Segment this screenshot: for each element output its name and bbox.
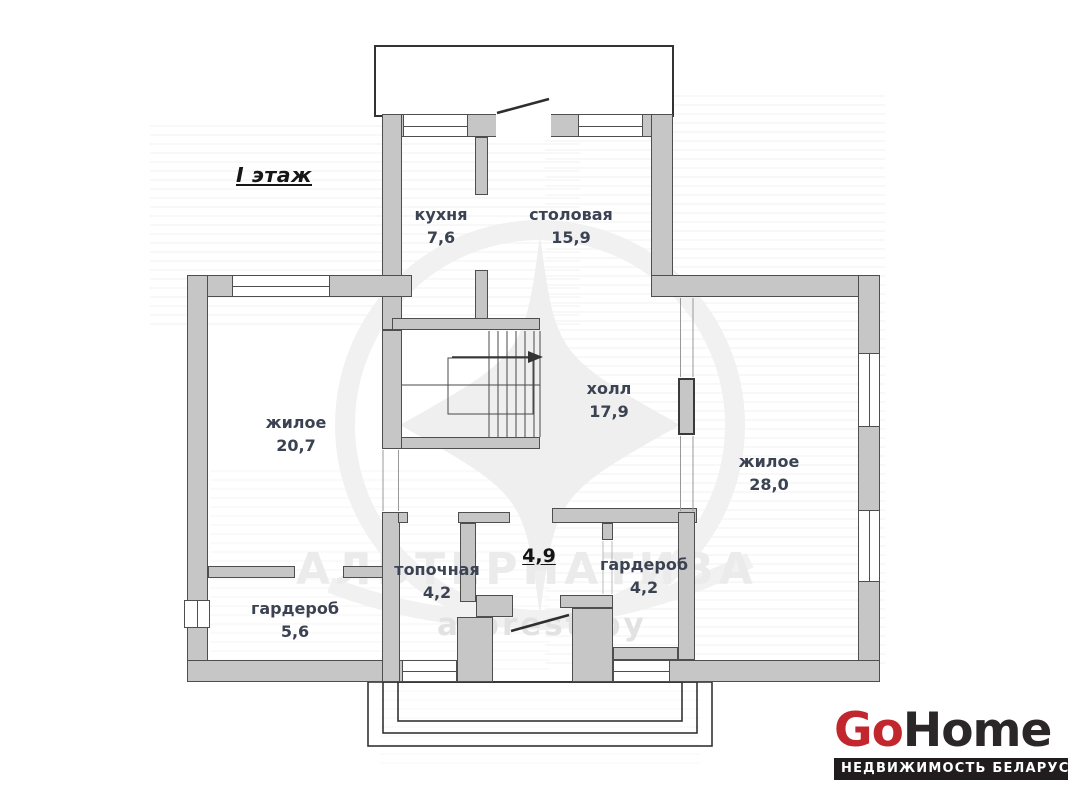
page-title: I этаж	[236, 163, 312, 187]
room-label-dining: столовая 15,9	[529, 203, 613, 249]
logo-tagline: НЕДВИЖИМОСТЬ БЕЛАРУСИ	[834, 758, 1068, 780]
logo-wordmark: GoHome	[834, 706, 1068, 755]
room-label-kitchen: кухня 7,6	[415, 203, 468, 249]
room-label-vestibule: 4,9	[522, 543, 556, 571]
room-label-living-left: жилое 20,7	[266, 411, 327, 457]
staircase	[402, 331, 540, 437]
room-label-living-right: жилое 28,0	[739, 450, 800, 496]
floorplan-canvas: АЛЬТЕРНАТИВА a-brest.by	[0, 0, 1068, 800]
plan-details	[0, 0, 1068, 800]
room-label-wardrobe-right: гардероб 4,2	[600, 553, 688, 599]
door-swing	[511, 615, 569, 631]
room-label-hall: холл 17,9	[587, 377, 632, 423]
gohome-logo: GoHome НЕДВИЖИМОСТЬ БЕЛАРУСИ	[834, 706, 1068, 780]
room-label-wardrobe-left: гардероб 5,6	[251, 597, 339, 643]
logo-go: Go	[834, 703, 903, 758]
room-label-boiler: топочная 4,2	[394, 558, 479, 604]
logo-home: Home	[903, 703, 1051, 758]
door-swing	[497, 99, 549, 113]
